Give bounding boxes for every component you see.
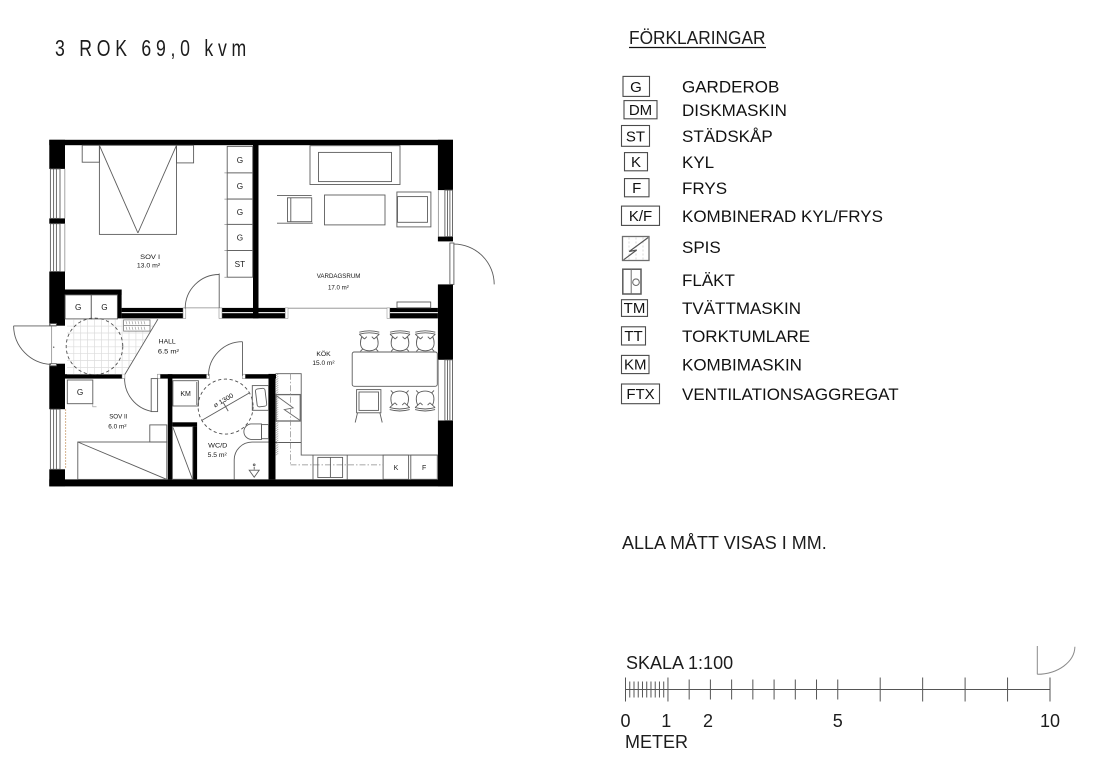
svg-text:G: G — [237, 182, 243, 191]
svg-text:DISKMASKIN: DISKMASKIN — [682, 101, 787, 120]
svg-text:1: 1 — [661, 711, 671, 731]
svg-text:KYL: KYL — [682, 153, 714, 172]
svg-text:KM: KM — [624, 357, 647, 374]
svg-text:6.5 m²: 6.5 m² — [158, 349, 179, 356]
svg-text:6.0 m²: 6.0 m² — [108, 423, 126, 430]
svg-text:K: K — [631, 154, 641, 171]
svg-text:TT: TT — [624, 328, 642, 345]
svg-text:KOMBIMASKIN: KOMBIMASKIN — [682, 356, 802, 375]
svg-text:METER: METER — [625, 732, 688, 752]
svg-text:GARDEROB: GARDEROB — [682, 78, 779, 97]
svg-text:17.0 m²: 17.0 m² — [328, 285, 349, 292]
svg-text:2: 2 — [703, 711, 713, 731]
svg-text:10: 10 — [1040, 711, 1060, 731]
svg-text:K/F: K/F — [629, 208, 652, 225]
svg-text:SOV II: SOV II — [109, 413, 127, 420]
svg-text:TVÄTTMASKIN: TVÄTTMASKIN — [682, 299, 801, 318]
svg-text:STÄDSKÅP: STÄDSKÅP — [682, 127, 773, 146]
svg-text:G: G — [630, 79, 642, 96]
svg-text:HALL: HALL — [159, 339, 177, 346]
svg-text:KM: KM — [180, 391, 191, 398]
svg-text:5: 5 — [833, 711, 843, 731]
svg-text:TM: TM — [624, 300, 646, 317]
svg-text:F: F — [422, 465, 426, 472]
svg-text:SOV I: SOV I — [140, 254, 160, 261]
svg-text:F: F — [632, 180, 641, 197]
svg-text:15.0 m²: 15.0 m² — [312, 360, 334, 367]
svg-text:WC/D: WC/D — [208, 443, 228, 450]
svg-text:VENTILATIONSAGGREGAT: VENTILATIONSAGGREGAT — [682, 385, 899, 404]
svg-text:FRYS: FRYS — [682, 179, 727, 198]
svg-text:G: G — [237, 156, 243, 165]
svg-text:G: G — [237, 234, 243, 243]
svg-text:0: 0 — [620, 711, 630, 731]
svg-text:KOMBINERAD KYL/FRYS: KOMBINERAD KYL/FRYS — [682, 207, 883, 226]
svg-text:FLÄKT: FLÄKT — [682, 271, 735, 290]
svg-text:K: K — [394, 465, 399, 472]
svg-text:DM: DM — [629, 102, 652, 119]
svg-text:G: G — [101, 303, 107, 312]
svg-text:VARDAGSRUM: VARDAGSRUM — [317, 273, 361, 280]
svg-text:G: G — [237, 208, 243, 217]
svg-text:5.5 m²: 5.5 m² — [208, 452, 227, 459]
svg-text:13.0 m²: 13.0 m² — [137, 263, 160, 270]
svg-text:ST: ST — [235, 260, 245, 269]
svg-text:SKALA 1:100: SKALA 1:100 — [626, 653, 733, 673]
svg-text:KÖK: KÖK — [316, 350, 331, 358]
svg-text:FTX: FTX — [626, 386, 654, 403]
svg-text:G: G — [77, 388, 83, 397]
svg-text:ST: ST — [626, 129, 645, 146]
svg-text:FÖRKLARINGAR: FÖRKLARINGAR — [629, 27, 766, 48]
svg-text:3 ROK 69,0 kvm: 3 ROK 69,0 kvm — [55, 35, 251, 61]
svg-text:G: G — [75, 303, 81, 312]
svg-text:ALLA MÅTT VISAS I MM.: ALLA MÅTT VISAS I MM. — [622, 533, 827, 553]
svg-text:SPIS: SPIS — [682, 238, 721, 257]
svg-text:TORKTUMLARE: TORKTUMLARE — [682, 327, 810, 346]
